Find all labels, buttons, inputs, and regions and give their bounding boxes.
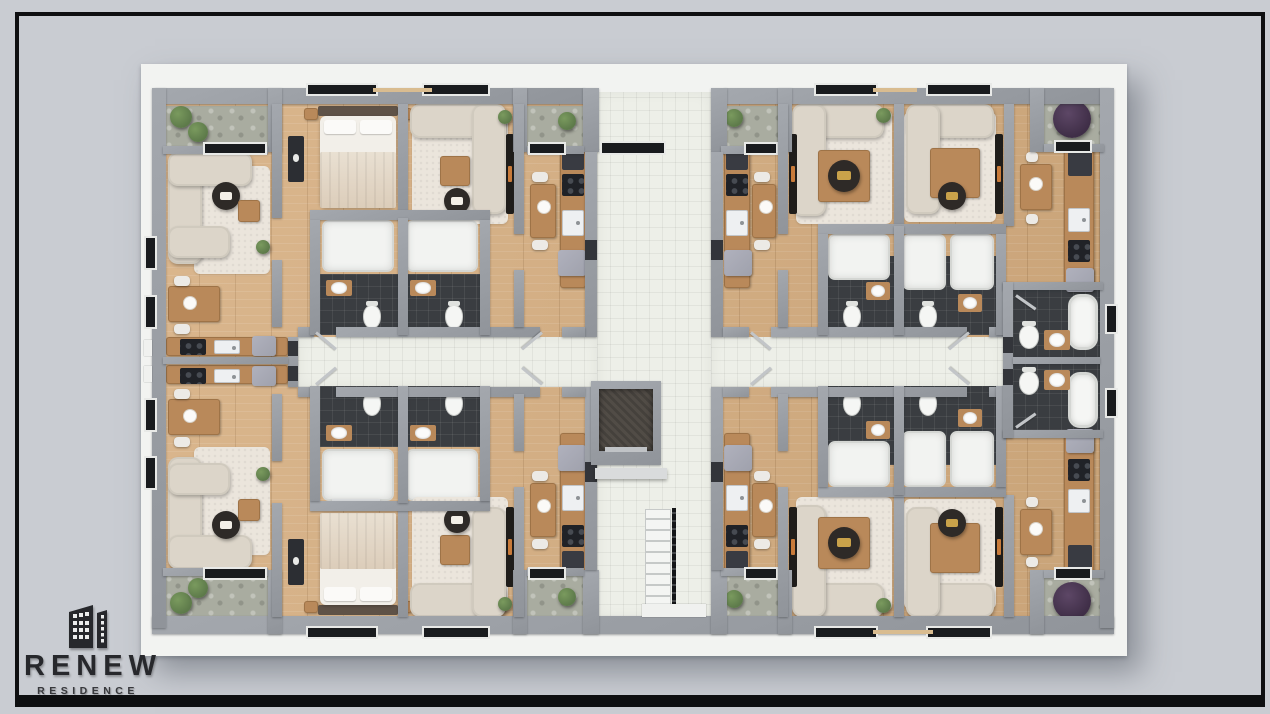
- headboard: [318, 106, 398, 116]
- dining-table: [530, 184, 556, 238]
- fridge: [724, 250, 752, 276]
- balcony-door: [205, 569, 265, 578]
- wardrobe: [288, 539, 304, 585]
- vanity-sink: [410, 425, 436, 441]
- side-table: [238, 499, 260, 521]
- toilet: [920, 306, 936, 328]
- range-hood: [726, 551, 748, 569]
- brand-logo: RENEW RESIDENCE: [24, 598, 152, 697]
- wall: [1030, 88, 1044, 152]
- wardrobe: [288, 136, 304, 182]
- plant: [1053, 582, 1091, 620]
- sink: [1068, 489, 1090, 513]
- pillow: [324, 587, 356, 601]
- tv-console: [995, 134, 1003, 214]
- toilet: [1020, 326, 1038, 348]
- chair: [532, 240, 548, 250]
- entrance-door: [602, 143, 664, 153]
- stove: [562, 174, 584, 196]
- plant: [558, 112, 576, 130]
- stove: [180, 339, 206, 355]
- vanity-sink: [1044, 370, 1070, 390]
- wall: [480, 386, 490, 501]
- wall: [398, 104, 408, 218]
- sofa: [168, 152, 252, 186]
- bathtub: [1068, 294, 1098, 350]
- wall: [272, 260, 282, 327]
- elevator-shaft: [599, 389, 653, 451]
- wall: [723, 327, 749, 337]
- range-hood: [726, 152, 748, 170]
- shower: [406, 220, 478, 272]
- sink: [726, 485, 748, 511]
- vanity-sink: [326, 280, 352, 296]
- stool: [1026, 497, 1038, 507]
- wall: [894, 495, 904, 617]
- vanity-sink: [1044, 330, 1070, 350]
- stool: [1026, 214, 1038, 224]
- stair-railing: [672, 508, 676, 608]
- coffee-table: [212, 511, 240, 539]
- side-table: [440, 535, 470, 565]
- wall: [818, 234, 828, 335]
- elevator-door: [605, 447, 647, 452]
- sink: [214, 369, 240, 383]
- bathtub: [1068, 372, 1098, 428]
- wall: [336, 387, 540, 397]
- balcony-door: [746, 569, 776, 578]
- plant: [498, 597, 512, 611]
- wall: [1100, 88, 1114, 628]
- balcony-door: [205, 144, 265, 153]
- wall: [480, 220, 490, 335]
- dining-table: [168, 399, 220, 435]
- coffee-table: [938, 182, 966, 210]
- wall-cabinet: [1068, 152, 1092, 176]
- shower: [828, 234, 890, 280]
- window: [146, 297, 155, 327]
- window: [308, 628, 376, 637]
- wall: [398, 503, 408, 617]
- wall: [310, 386, 320, 501]
- chair: [174, 324, 190, 334]
- wall: [562, 387, 585, 397]
- vanity-sink: [958, 409, 982, 427]
- wall: [778, 104, 788, 234]
- plant: [876, 108, 891, 123]
- dining-table: [752, 483, 776, 537]
- wall: [894, 226, 904, 335]
- window-sill: [144, 340, 152, 356]
- balcony: [527, 106, 584, 148]
- wall: [514, 104, 524, 234]
- plant: [498, 110, 512, 124]
- wall: [771, 387, 967, 397]
- wall: [562, 327, 585, 337]
- shelf: [595, 468, 667, 479]
- plant: [1053, 100, 1091, 138]
- vanity-sink: [410, 280, 436, 296]
- wall: [778, 487, 788, 617]
- wall: [711, 88, 727, 152]
- window: [1107, 390, 1116, 416]
- headboard: [318, 605, 398, 615]
- window: [816, 628, 876, 637]
- chair: [754, 172, 770, 182]
- stove: [726, 174, 748, 196]
- shower: [828, 441, 890, 487]
- shower: [950, 234, 994, 290]
- tile-corridor-left: [298, 337, 597, 387]
- shower: [322, 449, 394, 501]
- chair: [532, 172, 548, 182]
- vanity-sink: [866, 421, 890, 439]
- sink: [726, 210, 748, 236]
- dining-table: [752, 184, 776, 238]
- pillow: [360, 120, 392, 134]
- door: [1003, 337, 1013, 353]
- stove: [1068, 240, 1090, 262]
- shower: [902, 234, 946, 290]
- shower: [902, 431, 946, 487]
- wall: [778, 270, 788, 327]
- sofa: [168, 226, 230, 258]
- door: [711, 240, 723, 260]
- fridge: [252, 366, 276, 386]
- plant: [725, 109, 743, 127]
- chair: [532, 471, 548, 481]
- facade-light-strip: [373, 88, 432, 92]
- vanity-sink: [958, 294, 982, 312]
- floor-plan-render: RENEW RESIDENCE: [0, 0, 1270, 714]
- side-table: [238, 200, 260, 222]
- door: [288, 366, 298, 381]
- range-hood: [562, 551, 584, 569]
- plant: [725, 590, 743, 608]
- wall: [1004, 495, 1014, 617]
- toilet: [446, 306, 462, 328]
- wall-cabinet: [1068, 545, 1092, 569]
- coffee-table: [828, 160, 860, 192]
- door: [711, 462, 723, 482]
- wall: [398, 218, 408, 335]
- bar-table: [1020, 509, 1052, 555]
- wall: [583, 88, 599, 152]
- fridge: [252, 336, 276, 356]
- stair-landing: [642, 604, 706, 617]
- fridge: [558, 445, 586, 471]
- chair: [532, 539, 548, 549]
- door: [288, 341, 298, 356]
- stove: [180, 368, 206, 384]
- wall: [310, 220, 320, 335]
- shower: [406, 449, 478, 501]
- balcony-door: [1056, 142, 1090, 151]
- wall: [778, 394, 788, 451]
- shower: [950, 431, 994, 487]
- coffee-table: [938, 509, 966, 537]
- wall: [818, 386, 828, 487]
- wall: [272, 394, 282, 461]
- wall: [723, 387, 749, 397]
- plant: [256, 467, 270, 481]
- wall: [1003, 282, 1103, 290]
- window: [816, 85, 876, 94]
- stove: [562, 525, 584, 547]
- nightstand: [304, 601, 318, 613]
- sink: [562, 210, 584, 236]
- wall: [398, 386, 408, 503]
- coffee-table: [212, 182, 240, 210]
- window: [1107, 306, 1116, 332]
- balcony-door: [530, 144, 564, 153]
- wall: [711, 570, 727, 634]
- wall: [894, 386, 904, 495]
- window: [146, 238, 155, 268]
- window: [146, 400, 155, 430]
- window: [424, 85, 488, 94]
- wall: [818, 487, 1006, 497]
- side-table: [440, 156, 470, 186]
- sink: [1068, 208, 1090, 232]
- sink: [562, 485, 584, 511]
- sofa: [168, 463, 230, 495]
- chair: [754, 471, 770, 481]
- chair: [754, 240, 770, 250]
- brand-name: RENEW: [24, 650, 152, 683]
- wall: [1004, 104, 1014, 226]
- nightstand: [304, 108, 318, 120]
- wall: [272, 104, 282, 218]
- window-sill: [144, 366, 152, 382]
- wall: [894, 104, 904, 226]
- chair: [754, 539, 770, 549]
- fridge: [558, 250, 586, 276]
- wall: [771, 327, 967, 337]
- vanity-sink: [326, 425, 352, 441]
- wall: [818, 224, 1006, 234]
- chair: [174, 276, 190, 286]
- plant: [256, 240, 270, 254]
- stool: [1026, 152, 1038, 162]
- door: [1003, 369, 1013, 385]
- window: [146, 458, 155, 488]
- chair: [174, 389, 190, 399]
- wall: [514, 270, 524, 327]
- wall: [1030, 570, 1044, 634]
- window: [424, 628, 488, 637]
- balcony-door: [746, 144, 776, 153]
- wall: [514, 487, 524, 617]
- toilet: [844, 306, 860, 328]
- toilet: [364, 306, 380, 328]
- tv-console: [995, 507, 1003, 587]
- plant: [170, 106, 192, 128]
- balcony-door: [530, 569, 564, 578]
- buildings-icon: [66, 598, 110, 648]
- stool: [1026, 557, 1038, 567]
- wall: [1013, 357, 1100, 364]
- wall: [514, 394, 524, 451]
- toilet: [1020, 372, 1038, 394]
- plant: [188, 122, 208, 142]
- brand-subtitle: RESIDENCE: [24, 685, 152, 697]
- bar-table: [1020, 164, 1052, 210]
- staircase: [646, 510, 670, 606]
- balcony-door: [1056, 569, 1090, 578]
- window: [308, 85, 376, 94]
- coffee-table: [828, 527, 860, 559]
- blanket: [320, 513, 396, 569]
- vanity-sink: [866, 282, 890, 300]
- plant: [170, 592, 192, 614]
- fridge: [724, 445, 752, 471]
- facade-light-strip: [873, 630, 933, 634]
- chair: [174, 437, 190, 447]
- blanket: [320, 152, 396, 208]
- dining-table: [530, 483, 556, 537]
- facade-light-strip: [873, 88, 917, 92]
- wall: [1003, 282, 1013, 438]
- wall: [1003, 430, 1103, 438]
- door: [585, 240, 597, 260]
- wall: [163, 357, 288, 364]
- sofa: [168, 535, 252, 569]
- dining-table: [168, 286, 220, 322]
- pillow: [360, 587, 392, 601]
- sink: [214, 340, 240, 354]
- wall: [272, 503, 282, 617]
- stove: [726, 525, 748, 547]
- plant: [188, 578, 208, 598]
- window: [928, 628, 990, 637]
- wall: [336, 327, 540, 337]
- plant: [558, 588, 576, 606]
- plant: [876, 598, 891, 613]
- stove: [1068, 459, 1090, 481]
- apartment-building-plan: [0, 0, 1270, 714]
- pillow: [324, 120, 356, 134]
- window: [928, 85, 990, 94]
- range-hood: [562, 152, 584, 170]
- shower: [322, 220, 394, 272]
- wall: [583, 570, 599, 634]
